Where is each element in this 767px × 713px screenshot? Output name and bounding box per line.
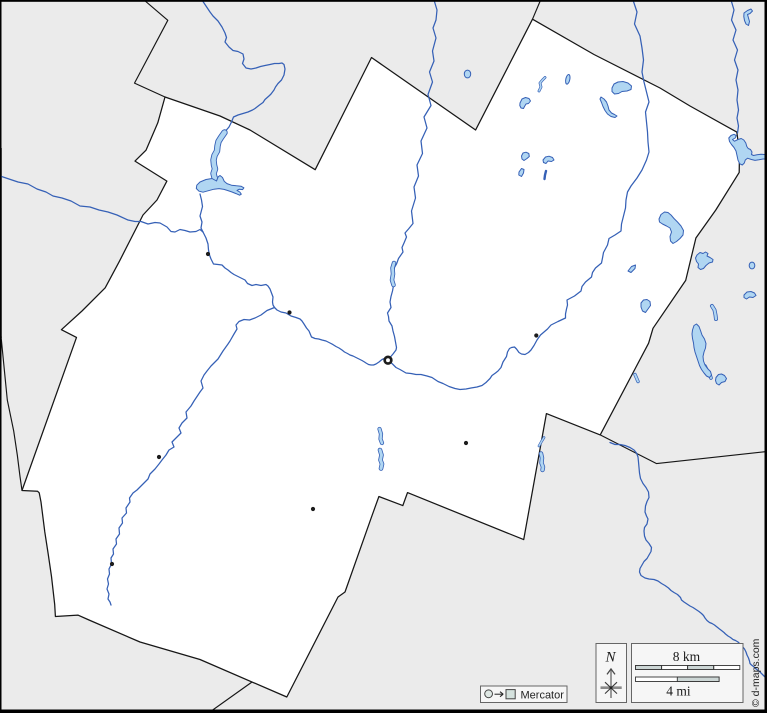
svg-text:N: N bbox=[604, 650, 616, 666]
svg-text:© d-maps.com: © d-maps.com bbox=[750, 638, 762, 707]
svg-text:Mercator: Mercator bbox=[521, 689, 565, 701]
svg-text:4 mi: 4 mi bbox=[666, 684, 691, 699]
svg-text:8 km: 8 km bbox=[673, 649, 701, 664]
